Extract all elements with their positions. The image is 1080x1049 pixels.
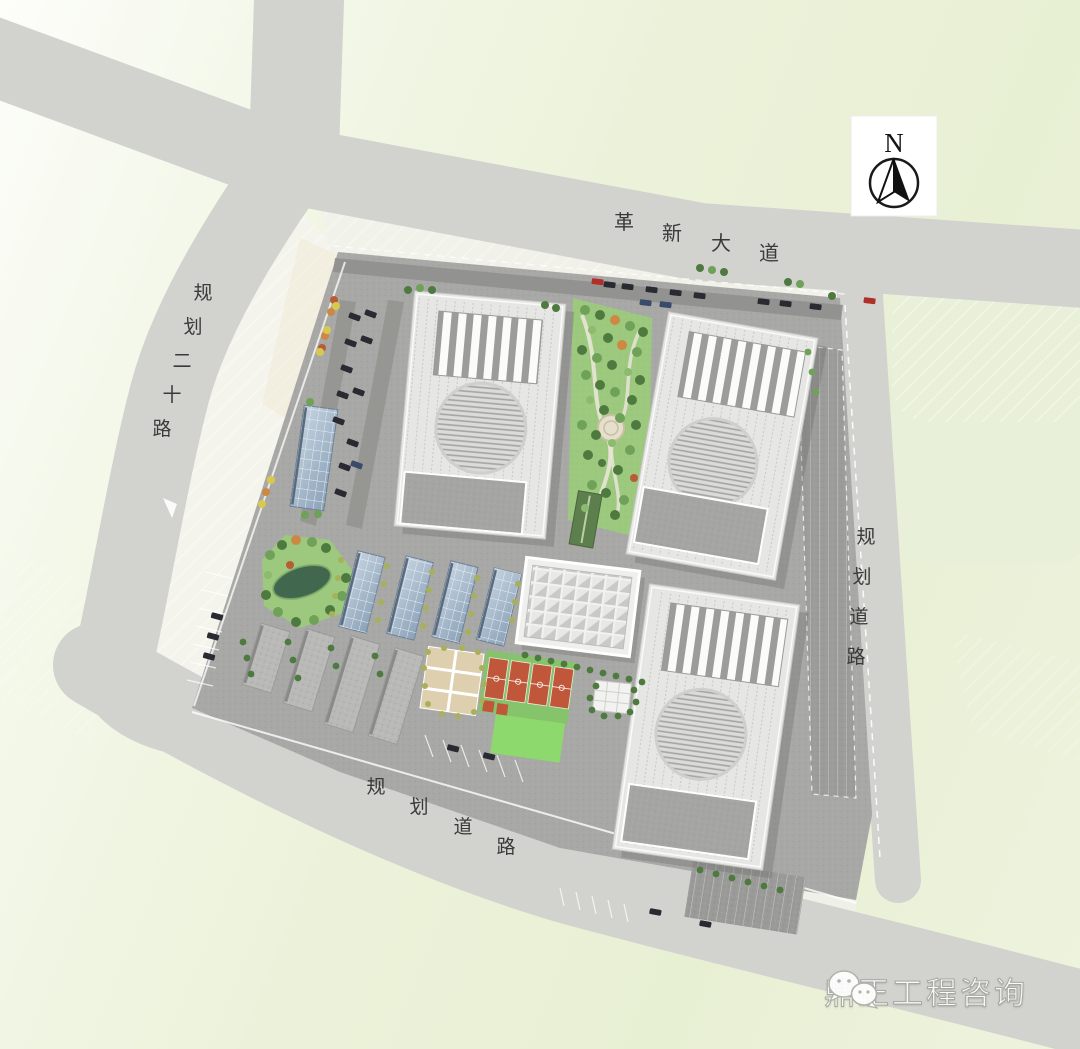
road-north-char: 道 <box>759 241 779 265</box>
north-compass: N <box>851 116 937 216</box>
road-north-char: 大 <box>711 231 731 255</box>
road-south-char: 道 <box>453 816 472 838</box>
road-north-char: 新 <box>662 221 682 245</box>
road-south-char: 划 <box>409 796 428 818</box>
site-plan-canvas: 革 新 大 道 规 划 二 十 路 规 划 道 路 规 划 道 路 N <box>0 0 1080 1049</box>
skylight-band <box>433 311 542 384</box>
road-east-char: 划 <box>852 566 871 588</box>
road-north-char: 革 <box>614 210 634 234</box>
road-south-char: 规 <box>366 776 385 798</box>
wechat-icon <box>824 968 882 1014</box>
site-plan-rendering: 革 新 大 道 规 划 二 十 路 规 划 道 路 规 划 道 路 N <box>0 0 1080 1049</box>
road-west-char: 路 <box>152 418 171 440</box>
road-east-char: 规 <box>856 526 875 548</box>
waffle-building <box>515 557 645 663</box>
green-lot-southeast-hatch <box>950 630 1080 760</box>
basketball-courts <box>478 650 576 724</box>
compass-n-label: N <box>884 128 904 158</box>
watermark: 鼎正工程咨询 <box>824 968 1028 1013</box>
road-west-char: 十 <box>162 384 181 406</box>
road-east-char: 道 <box>849 606 868 628</box>
road-west-char: 划 <box>183 316 202 338</box>
road-west-char: 规 <box>193 282 212 304</box>
road-west-char: 二 <box>172 350 191 372</box>
road-south-char: 路 <box>496 836 515 858</box>
warehouse-a <box>393 291 575 547</box>
road-east-char: 路 <box>846 646 865 668</box>
